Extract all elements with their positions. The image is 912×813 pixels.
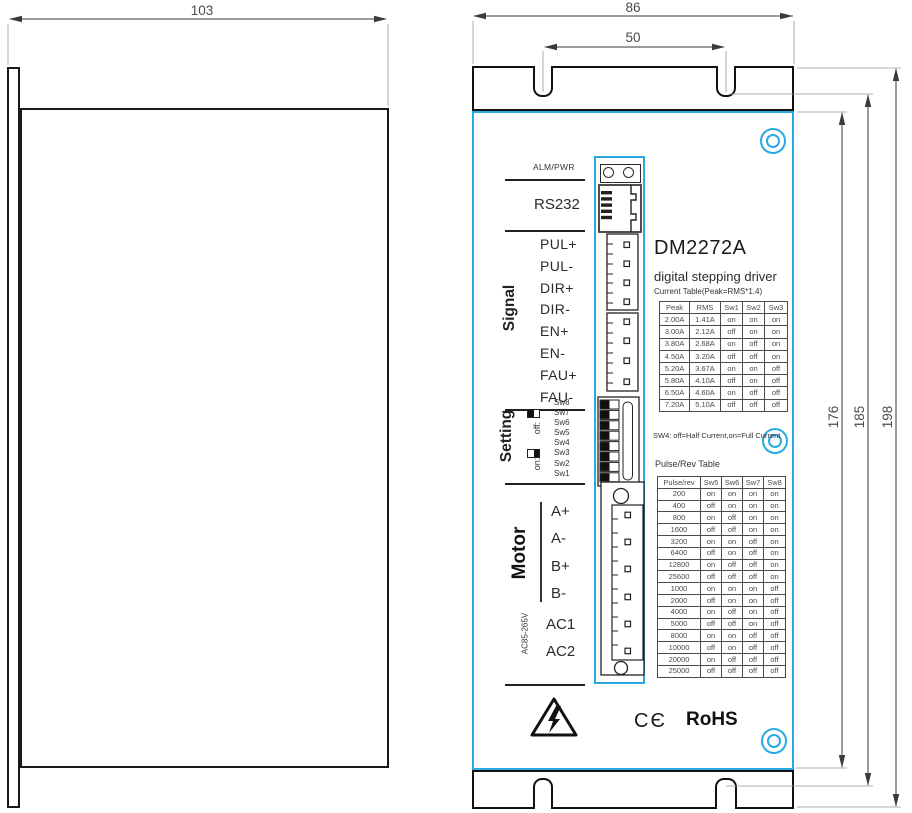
current-table-row: 3.80A2.68Aonoffon xyxy=(660,338,788,350)
signal-connector-2 xyxy=(606,312,640,393)
current-table-row: 4.50A3.20Aoffoffon xyxy=(660,350,788,362)
dip-switch-label: Sw3 xyxy=(554,448,570,458)
model-subtitle: digital stepping driver xyxy=(654,269,777,284)
front-view-bottom-flange xyxy=(472,770,794,809)
pulse-table-row: 1600offoffonon xyxy=(658,524,786,536)
mounting-slot-bottom-left xyxy=(533,778,553,809)
dip-switch-label: Sw2 xyxy=(554,459,570,469)
model-number: DM2272A xyxy=(654,237,746,260)
mounting-slot-top-right xyxy=(716,66,736,97)
alarm-led-icon xyxy=(603,167,614,178)
pulse-table-row: 10000offonoffoff xyxy=(658,642,786,654)
signal-pin-label: EN+ xyxy=(540,321,577,343)
rs232-label: RS232 xyxy=(534,196,580,213)
signal-pin-label: EN- xyxy=(540,343,577,365)
separator-line xyxy=(505,684,585,686)
signal-pin-label: DIR- xyxy=(540,299,577,321)
dip-switch-label: Sw4 xyxy=(554,438,570,448)
pulse-table-row: 3200ononoffon xyxy=(658,535,786,547)
pulse-table-row: 4000onoffonoff xyxy=(658,606,786,618)
pulse-table-row: 6400offonoffon xyxy=(658,547,786,559)
signal-pin-label: FAU+ xyxy=(540,365,577,387)
signal-pin-labels: PUL+PUL-DIR+DIR-EN+EN-FAU+FAU- xyxy=(540,234,577,408)
current-table-row: 5.20A3.67Aononoff xyxy=(660,362,788,374)
current-table-header: Sw2 xyxy=(743,302,765,314)
power-pin-label: AC2 xyxy=(546,638,575,665)
motor-pin-label: A+ xyxy=(551,498,570,525)
current-table-header: RMS xyxy=(690,302,721,314)
pulse-table-title: Pulse/Rev Table xyxy=(655,459,720,469)
current-table-header: Sw3 xyxy=(765,302,788,314)
current-table: PeakRMSSw1Sw2Sw3 2.00A1.41Aononon 3.00A2… xyxy=(659,301,788,412)
pulse-table-row: 8000ononoffoff xyxy=(658,630,786,642)
mounting-slot-top-left xyxy=(533,66,553,97)
current-table-caption: Current Table(Peak=RMS*1.4) xyxy=(654,287,762,296)
dip-switch-label: Sw7 xyxy=(554,408,570,418)
motor-power-connector xyxy=(600,481,645,676)
pulse-table-header: Sw7 xyxy=(743,477,764,489)
dip-switch-label: Sw1 xyxy=(554,469,570,479)
dim-side-width: 103 xyxy=(172,3,232,18)
pulse-table-row: 2000offononoff xyxy=(658,594,786,606)
pulse-table-header: Sw6 xyxy=(722,477,743,489)
side-view-mounting-plate xyxy=(7,67,20,808)
dip-off-label: off: xyxy=(531,415,543,441)
current-table-header: Peak xyxy=(660,302,690,314)
current-table-row: 3.00A2.12Aoffonon xyxy=(660,326,788,338)
separator-line xyxy=(505,230,585,232)
ce-mark: CЄ xyxy=(634,710,667,733)
pulse-table-header: Sw5 xyxy=(701,477,722,489)
current-table-row: 2.00A1.41Aononon xyxy=(660,314,788,326)
pulse-table-header: Pulse/rev xyxy=(658,477,701,489)
pulse-rev-table: Pulse/revSw5Sw6Sw7Sw8 200onononon 400off… xyxy=(657,476,786,678)
pulse-table-row: 400offononon xyxy=(658,500,786,512)
dim-slot-span: 50 xyxy=(603,30,663,45)
pulse-table-row: 1000onononoff xyxy=(658,583,786,595)
dip-switch-label: Sw8 xyxy=(554,398,570,408)
current-table-row: 5.80A4.10Aoffonoff xyxy=(660,375,788,387)
power-pin-labels: AC1AC2 xyxy=(546,611,575,666)
pulse-table-row: 12800onoffoffon xyxy=(658,559,786,571)
current-table-row: 7.20A5.10Aoffoffoff xyxy=(660,399,788,411)
motor-pin-label: B- xyxy=(551,580,570,607)
motor-pin-label: B+ xyxy=(551,553,570,580)
motor-section-title: Motor xyxy=(510,511,530,595)
pulse-table-header: Sw8 xyxy=(764,477,786,489)
dim-front-width: 86 xyxy=(603,0,663,15)
screw-hole-bottom-inner-icon xyxy=(767,734,781,748)
pulse-table-row: 5000offoffonoff xyxy=(658,618,786,630)
pulse-table-row: 25600offoffoffon xyxy=(658,571,786,583)
pulse-table-row: 200onononon xyxy=(658,488,786,500)
front-view-top-flange xyxy=(472,66,794,111)
high-voltage-warning-icon xyxy=(529,696,579,739)
separator-line xyxy=(505,179,585,181)
power-rating-label: AC85-265V xyxy=(520,599,531,669)
pulse-table-row: 25000offoffoffoff xyxy=(658,665,786,677)
dim-body-height: 176 xyxy=(826,397,840,437)
dip-switch-label: Sw5 xyxy=(554,428,570,438)
motor-pin-labels: A+A-B+B- xyxy=(551,498,570,608)
sw4-note: SW4: off=Half Current,on=Full Current xyxy=(653,431,780,440)
dip-switch-block[interactable] xyxy=(597,396,640,487)
signal-pin-label: DIR+ xyxy=(540,278,577,300)
mounting-slot-bottom-right xyxy=(715,778,737,809)
dip-switch-label: Sw6 xyxy=(554,418,570,428)
pulse-table-row: 20000onoffoffoff xyxy=(658,653,786,665)
power-pin-label: AC1 xyxy=(546,611,575,638)
side-view-body xyxy=(20,108,389,768)
dip-switch-labels: Sw8Sw7Sw6Sw5Sw4Sw3Sw2Sw1 xyxy=(554,398,570,479)
separator-line xyxy=(505,483,585,485)
motor-pin-label: A- xyxy=(551,525,570,552)
current-table-header: Sw1 xyxy=(721,302,743,314)
dim-slot-height: 185 xyxy=(852,397,866,437)
setting-section-title: Setting xyxy=(499,401,515,471)
separator-line xyxy=(505,409,585,411)
alm-pwr-label: ALM/PWR xyxy=(533,162,575,172)
dim-total-height: 198 xyxy=(880,397,894,437)
signal-pin-label: PUL- xyxy=(540,256,577,278)
signal-connector-1 xyxy=(606,233,640,312)
dip-on-label: on: xyxy=(531,453,543,475)
pulse-table-row: 800onoffonon xyxy=(658,512,786,524)
engineering-drawing-canvas: 103 86 50 176 185 198 ALM/PWR RS232 PUL+… xyxy=(0,0,912,813)
signal-section-title: Signal xyxy=(502,273,518,343)
rohs-mark: RoHS xyxy=(686,709,738,731)
motor-group-line xyxy=(540,502,542,602)
power-led-icon xyxy=(623,167,634,178)
screw-hole-top-inner-icon xyxy=(766,134,780,148)
current-table-row: 6.50A4.60Aonoffoff xyxy=(660,387,788,399)
signal-pin-label: PUL+ xyxy=(540,234,577,256)
rs232-jack-icon xyxy=(598,184,644,234)
